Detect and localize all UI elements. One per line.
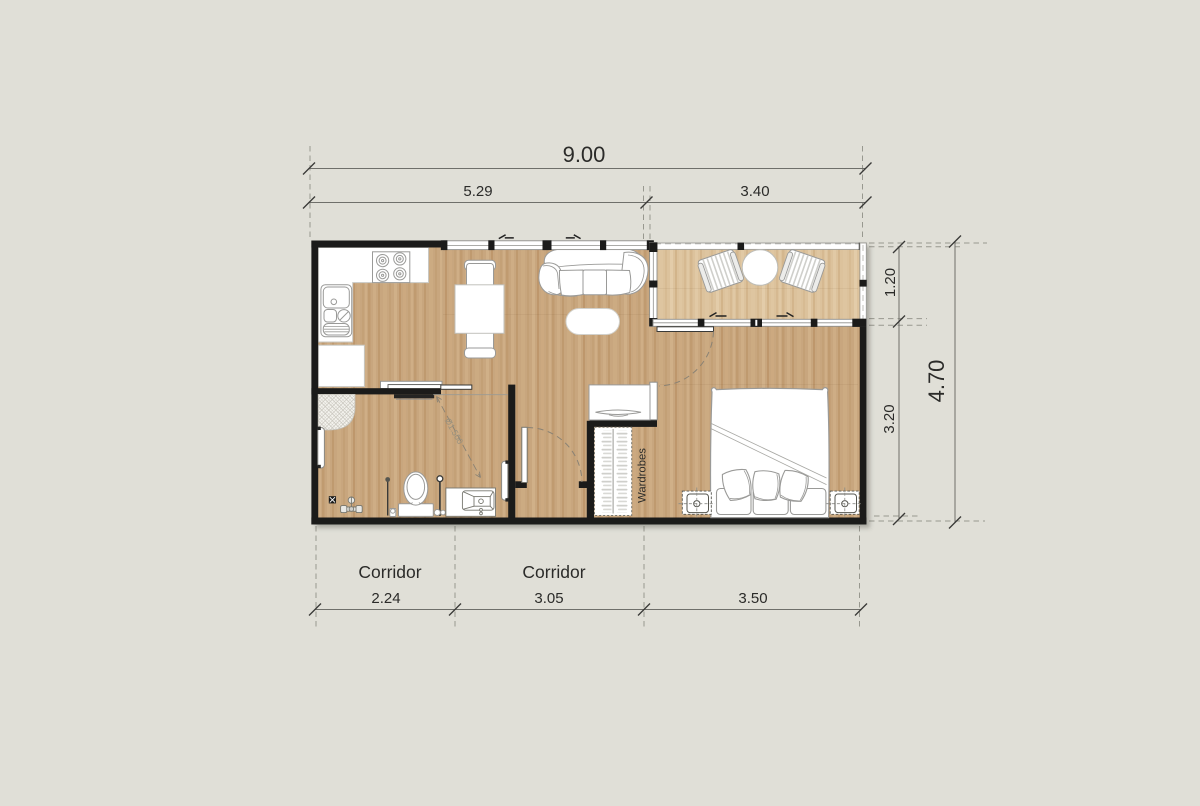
svg-text:Corridor: Corridor xyxy=(522,562,585,582)
svg-text:2.24: 2.24 xyxy=(371,590,400,607)
svg-text:3.50: 3.50 xyxy=(738,590,767,607)
svg-text:Wardrobes: Wardrobes xyxy=(637,448,649,503)
svg-text:3.20: 3.20 xyxy=(881,404,898,433)
svg-text:9.00: 9.00 xyxy=(563,142,606,167)
svg-text:5.29: 5.29 xyxy=(463,183,492,200)
svg-text:Corridor: Corridor xyxy=(358,562,421,582)
svg-text:3.40: 3.40 xyxy=(740,183,769,200)
svg-text:4.70: 4.70 xyxy=(924,360,949,403)
svg-text:3.05: 3.05 xyxy=(534,590,563,607)
svg-text:1.20: 1.20 xyxy=(882,268,899,297)
